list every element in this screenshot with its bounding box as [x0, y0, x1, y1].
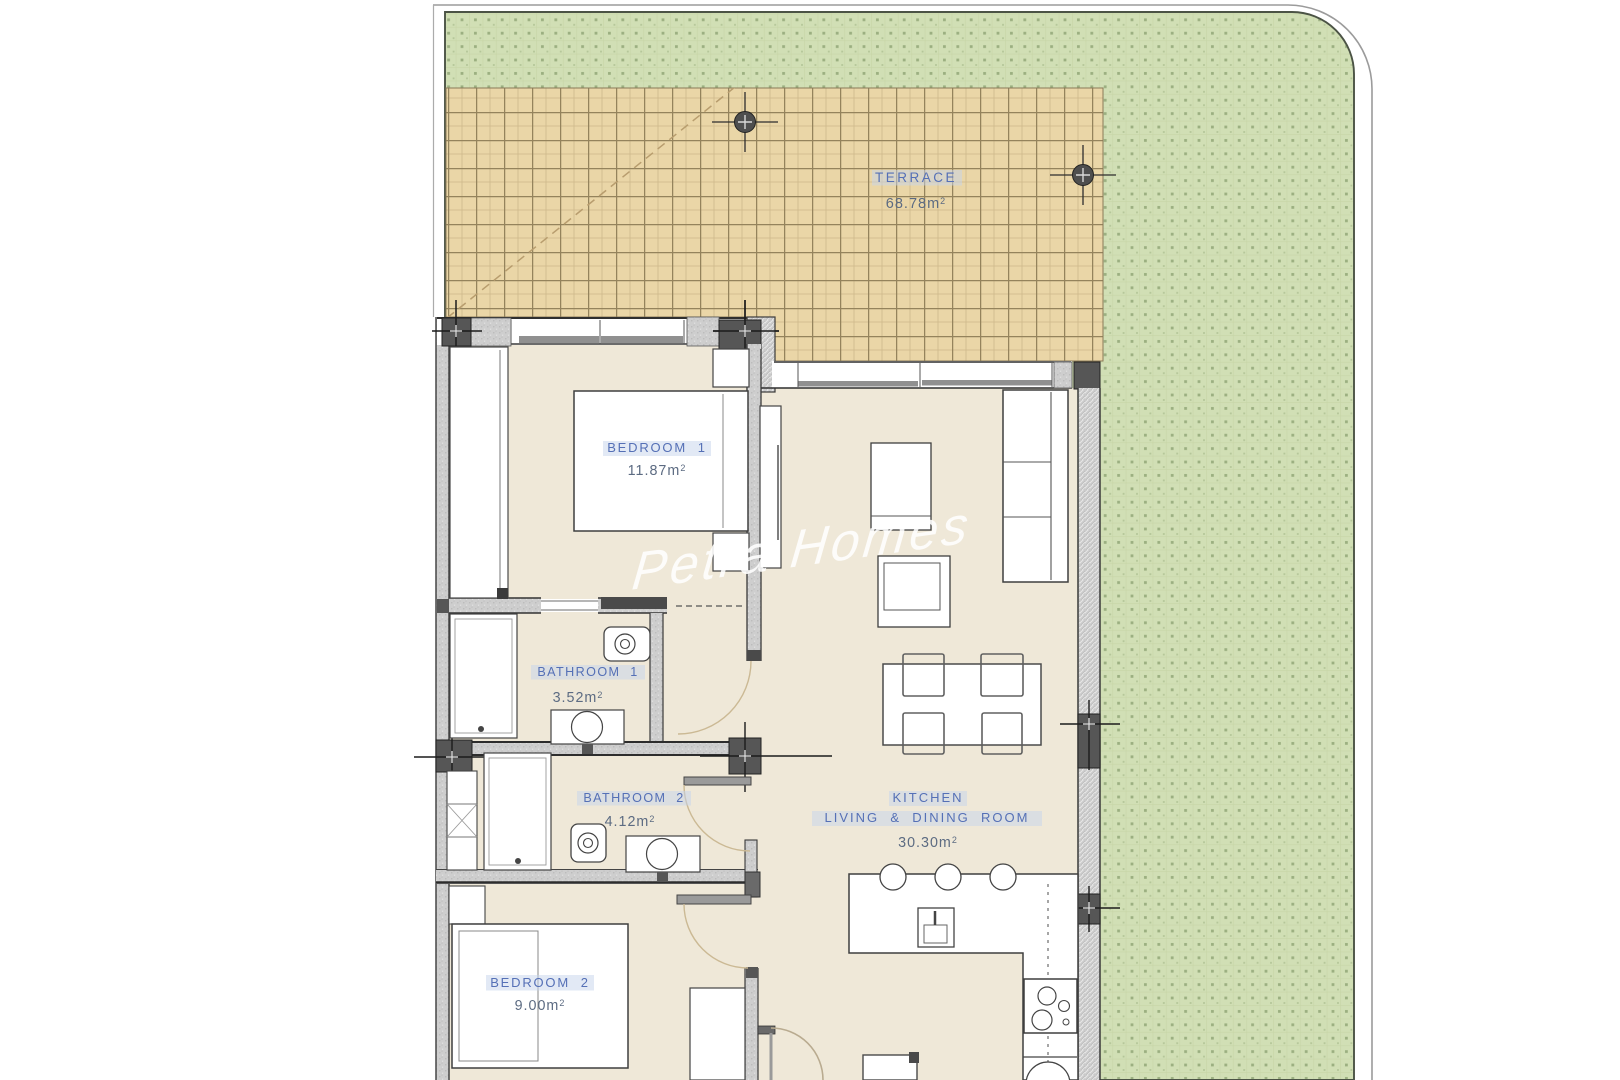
svg-text:BEDROOM 1: BEDROOM 1: [607, 440, 707, 455]
svg-text:9.00m2: 9.00m2: [515, 998, 566, 1014]
svg-text:LIVING & DINING ROOM: LIVING & DINING ROOM: [825, 810, 1030, 825]
svg-text:3.52m2: 3.52m2: [553, 690, 604, 706]
svg-text:KITCHEN: KITCHEN: [892, 790, 963, 805]
svg-text:30.30m2: 30.30m2: [898, 835, 958, 851]
svg-text:BATHROOM 1: BATHROOM 1: [537, 665, 638, 679]
svg-text:BATHROOM 2: BATHROOM 2: [583, 791, 684, 805]
svg-text:BEDROOM 2: BEDROOM 2: [490, 975, 590, 990]
svg-text:68.78m2: 68.78m2: [886, 196, 946, 212]
svg-text:11.87m2: 11.87m2: [628, 463, 687, 479]
svg-text:4.12m2: 4.12m2: [605, 814, 656, 830]
svg-text:TERRACE: TERRACE: [875, 170, 957, 185]
